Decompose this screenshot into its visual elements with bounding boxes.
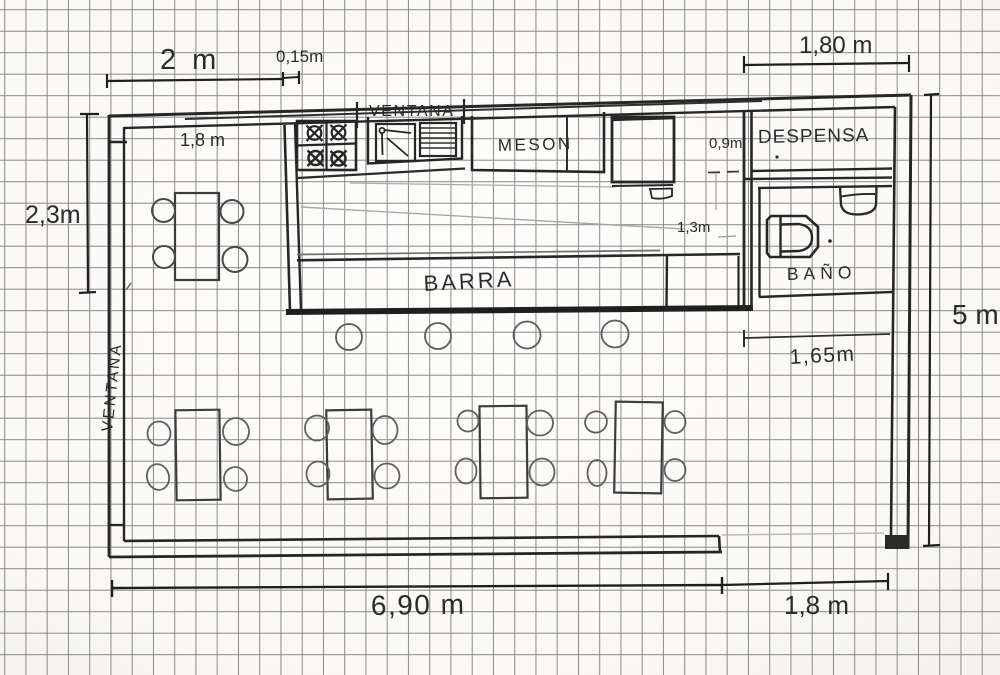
- svg-text:5 m: 5 m: [952, 299, 999, 330]
- svg-text:DESPENSA: DESPENSA: [758, 125, 870, 148]
- svg-text:6,90 m: 6,90 m: [371, 589, 466, 621]
- svg-text:1,8 m: 1,8 m: [180, 130, 225, 150]
- svg-text:1,3m: 1,3m: [677, 219, 710, 236]
- svg-text:1,8 m: 1,8 m: [784, 590, 849, 620]
- svg-text:1,65m: 1,65m: [789, 343, 856, 369]
- svg-text:1,80 m: 1,80 m: [799, 32, 872, 59]
- svg-text:BAÑO: BAÑO: [787, 261, 857, 284]
- svg-text:2,3m: 2,3m: [25, 201, 81, 229]
- svg-text:0,15m: 0,15m: [276, 47, 323, 66]
- svg-text:MESON: MESON: [498, 134, 573, 155]
- svg-text:BARRA: BARRA: [423, 266, 515, 296]
- svg-text:2 m: 2 m: [160, 44, 220, 76]
- svg-text:VENTANA: VENTANA: [369, 103, 455, 120]
- svg-text:0,9m: 0,9m: [709, 135, 742, 152]
